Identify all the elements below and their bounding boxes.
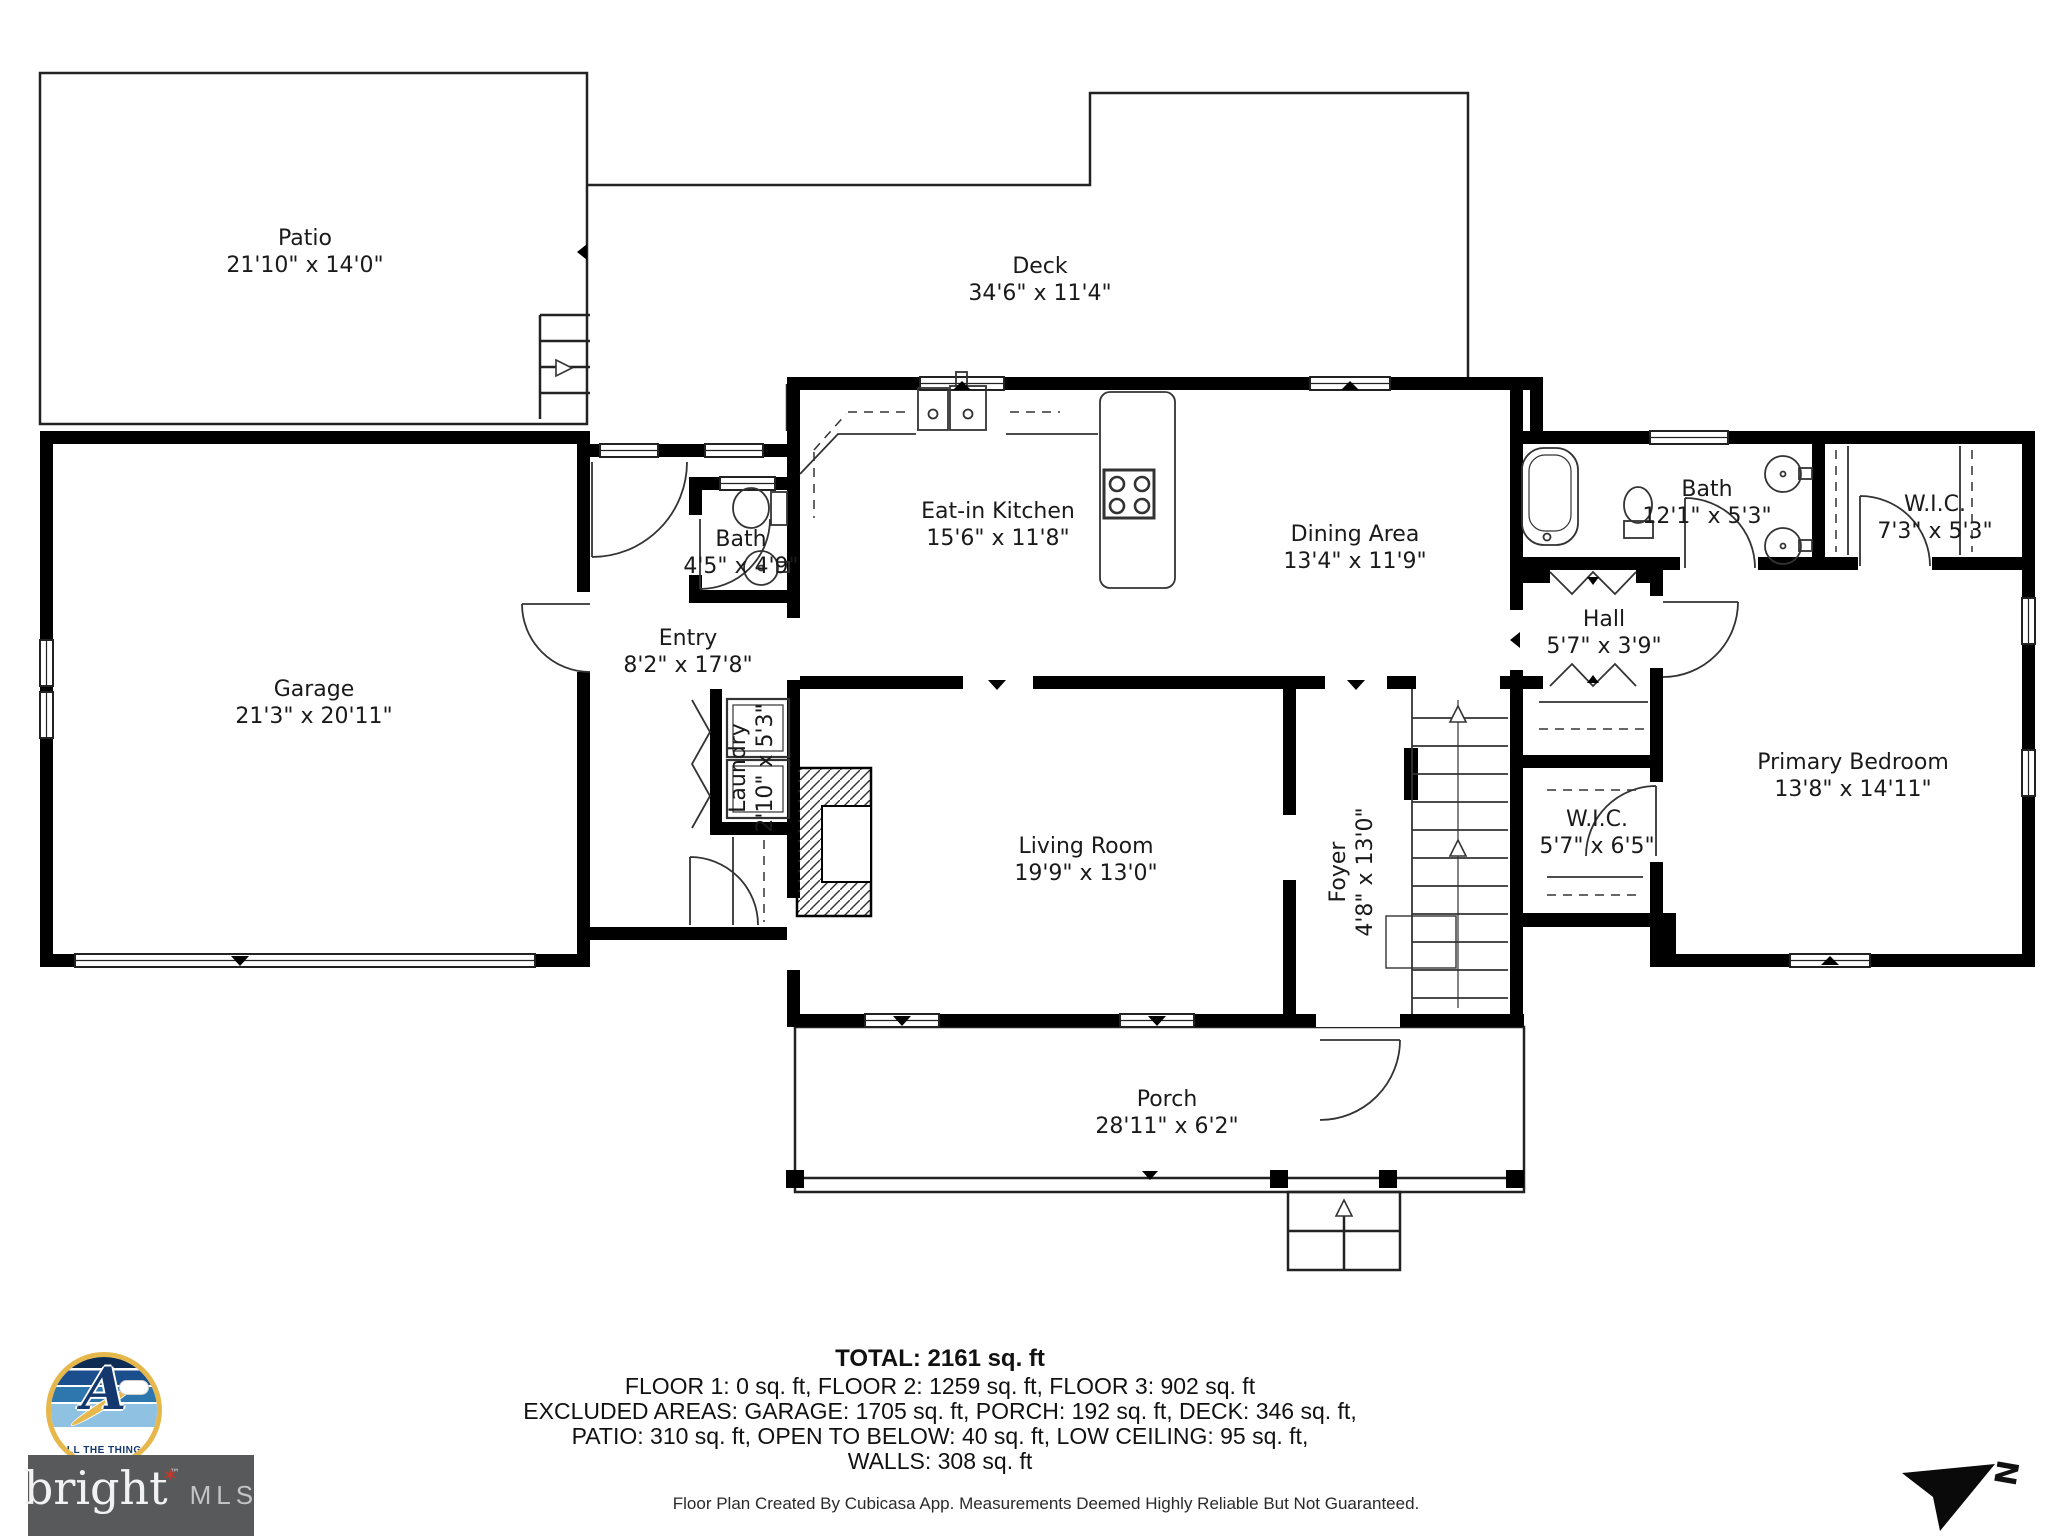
room-name: Living Room	[1014, 833, 1157, 860]
room-label-bath-right: Bath 12'1" x 5'3"	[1642, 476, 1771, 530]
badge-banner-text: ALL THE THINGS	[51, 1445, 157, 1456]
room-dims: 19'9" x 13'0"	[1014, 860, 1157, 887]
room-dims: 15'6" x 11'8"	[921, 525, 1075, 552]
room-dims: 2'10" x 5'3"	[752, 703, 779, 832]
room-label-porch: Porch 28'11" x 6'2"	[1095, 1086, 1238, 1140]
room-dims: 4'8" x 13'0"	[1352, 807, 1379, 936]
room-name: W.I.C.	[1877, 491, 1992, 518]
room-label-patio: Patio 21'10" x 14'0"	[226, 225, 383, 279]
room-dims: 12'1" x 5'3"	[1642, 503, 1771, 530]
room-name: Foyer	[1325, 807, 1352, 936]
room-name: Primary Bedroom	[1757, 749, 1949, 776]
disclaimer-text: Floor Plan Created By Cubicasa App. Meas…	[0, 1494, 2048, 1514]
mls-suffix: MLS	[190, 1480, 258, 1511]
room-dims: 5'7" x 6'5"	[1539, 833, 1654, 860]
room-label-wic-mid: W.I.C. 5'7" x 6'5"	[1539, 806, 1654, 860]
room-dims: 21'10" x 14'0"	[226, 252, 383, 279]
fireplace	[797, 768, 871, 916]
room-label-bath-small: Bath 4'5" x 4'9"	[683, 526, 798, 580]
walls-area: WALLS: 308 sq. ft	[0, 1449, 1880, 1474]
room-dims: 7'3" x 5'3"	[1877, 518, 1992, 545]
room-name: Dining Area	[1283, 521, 1426, 548]
bright-mls-logo: bright ✶ ™ MLS	[28, 1455, 254, 1536]
excluded-areas-1: EXCLUDED AREAS: GARAGE: 1705 sq. ft, POR…	[0, 1399, 1880, 1424]
excluded-areas-2: PATIO: 310 sq. ft, OPEN TO BELOW: 40 sq.…	[0, 1424, 1880, 1449]
room-label-kitchen: Eat-in Kitchen 15'6" x 11'8"	[921, 498, 1075, 552]
north-label: N	[1986, 1457, 2025, 1488]
room-name: Patio	[226, 225, 383, 252]
room-label-entry: Entry 8'2" x 17'8"	[623, 625, 752, 679]
all-the-things-badge-logo: A ALL THE THINGS	[46, 1352, 162, 1468]
room-label-wic-right: W.I.C. 7'3" x 5'3"	[1877, 491, 1992, 545]
room-name: Garage	[235, 676, 392, 703]
badge-letter: A	[81, 1355, 126, 1423]
room-name: Eat-in Kitchen	[921, 498, 1075, 525]
room-name: Hall	[1546, 606, 1661, 633]
room-label-primary-bedroom: Primary Bedroom 13'8" x 14'11"	[1757, 749, 1949, 803]
room-label-deck: Deck 34'6" x 11'4"	[968, 253, 1111, 307]
room-dims: 13'4" x 11'9"	[1283, 548, 1426, 575]
room-dims: 8'2" x 17'8"	[623, 652, 752, 679]
room-name: Bath	[1642, 476, 1771, 503]
room-label-living: Living Room 19'9" x 13'0"	[1014, 833, 1157, 887]
room-dims: 13'8" x 14'11"	[1757, 776, 1949, 803]
room-label-laundry: Laundry 2'10" x 5'3"	[725, 703, 779, 832]
room-name: Porch	[1095, 1086, 1238, 1113]
mls-wordmark: bright	[24, 1465, 168, 1511]
room-dims: 5'7" x 3'9"	[1546, 633, 1661, 660]
room-name: Bath	[683, 526, 798, 553]
floor-areas: FLOOR 1: 0 sq. ft, FLOOR 2: 1259 sq. ft,…	[0, 1374, 1880, 1399]
room-label-hall: Hall 5'7" x 3'9"	[1546, 606, 1661, 660]
room-name: Deck	[968, 253, 1111, 280]
room-dims: 28'11" x 6'2"	[1095, 1113, 1238, 1140]
room-name: W.I.C.	[1539, 806, 1654, 833]
room-label-garage: Garage 21'3" x 20'11"	[235, 676, 392, 730]
trademark-symbol: ™	[170, 1468, 180, 1479]
room-label-dining: Dining Area 13'4" x 11'9"	[1283, 521, 1426, 575]
room-dims: 21'3" x 20'11"	[235, 703, 392, 730]
room-label-foyer: Foyer 4'8" x 13'0"	[1325, 807, 1379, 936]
area-summary: TOTAL: 2161 sq. ft FLOOR 1: 0 sq. ft, FL…	[0, 1346, 1880, 1474]
room-name: Entry	[623, 625, 752, 652]
room-name: Laundry	[725, 703, 752, 832]
room-dims: 34'6" x 11'4"	[968, 280, 1111, 307]
room-dims: 4'5" x 4'9"	[683, 553, 798, 580]
floor-plan-page: N Patio 21'10" x 14'0" Deck 34'6" x 11'4…	[0, 0, 2048, 1536]
total-area: TOTAL: 2161 sq. ft	[0, 1346, 1880, 1371]
